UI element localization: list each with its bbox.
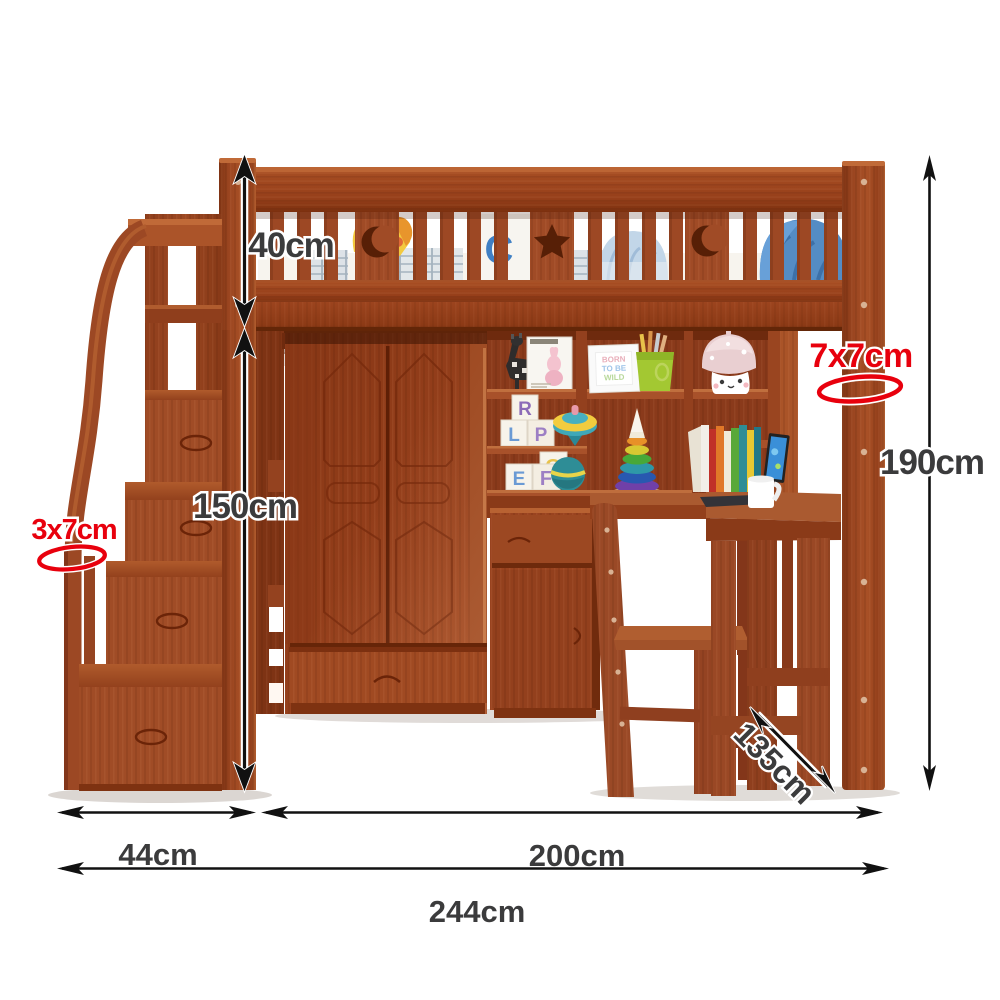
svg-text:R: R (518, 399, 532, 420)
svg-text:3x7cm: 3x7cm (31, 514, 116, 546)
svg-text:E: E (513, 469, 526, 490)
svg-text:150cm: 150cm (193, 487, 297, 526)
svg-text:244cm: 244cm (429, 894, 526, 929)
svg-text:44cm: 44cm (118, 837, 197, 872)
svg-text:7x7cm: 7x7cm (809, 337, 912, 375)
svg-text:P: P (535, 425, 548, 446)
svg-text:L: L (508, 425, 520, 446)
svg-text:40cm: 40cm (248, 226, 334, 265)
svg-text:F: F (540, 468, 552, 490)
svg-text:WILD: WILD (604, 373, 625, 383)
svg-text:190cm: 190cm (880, 443, 984, 482)
